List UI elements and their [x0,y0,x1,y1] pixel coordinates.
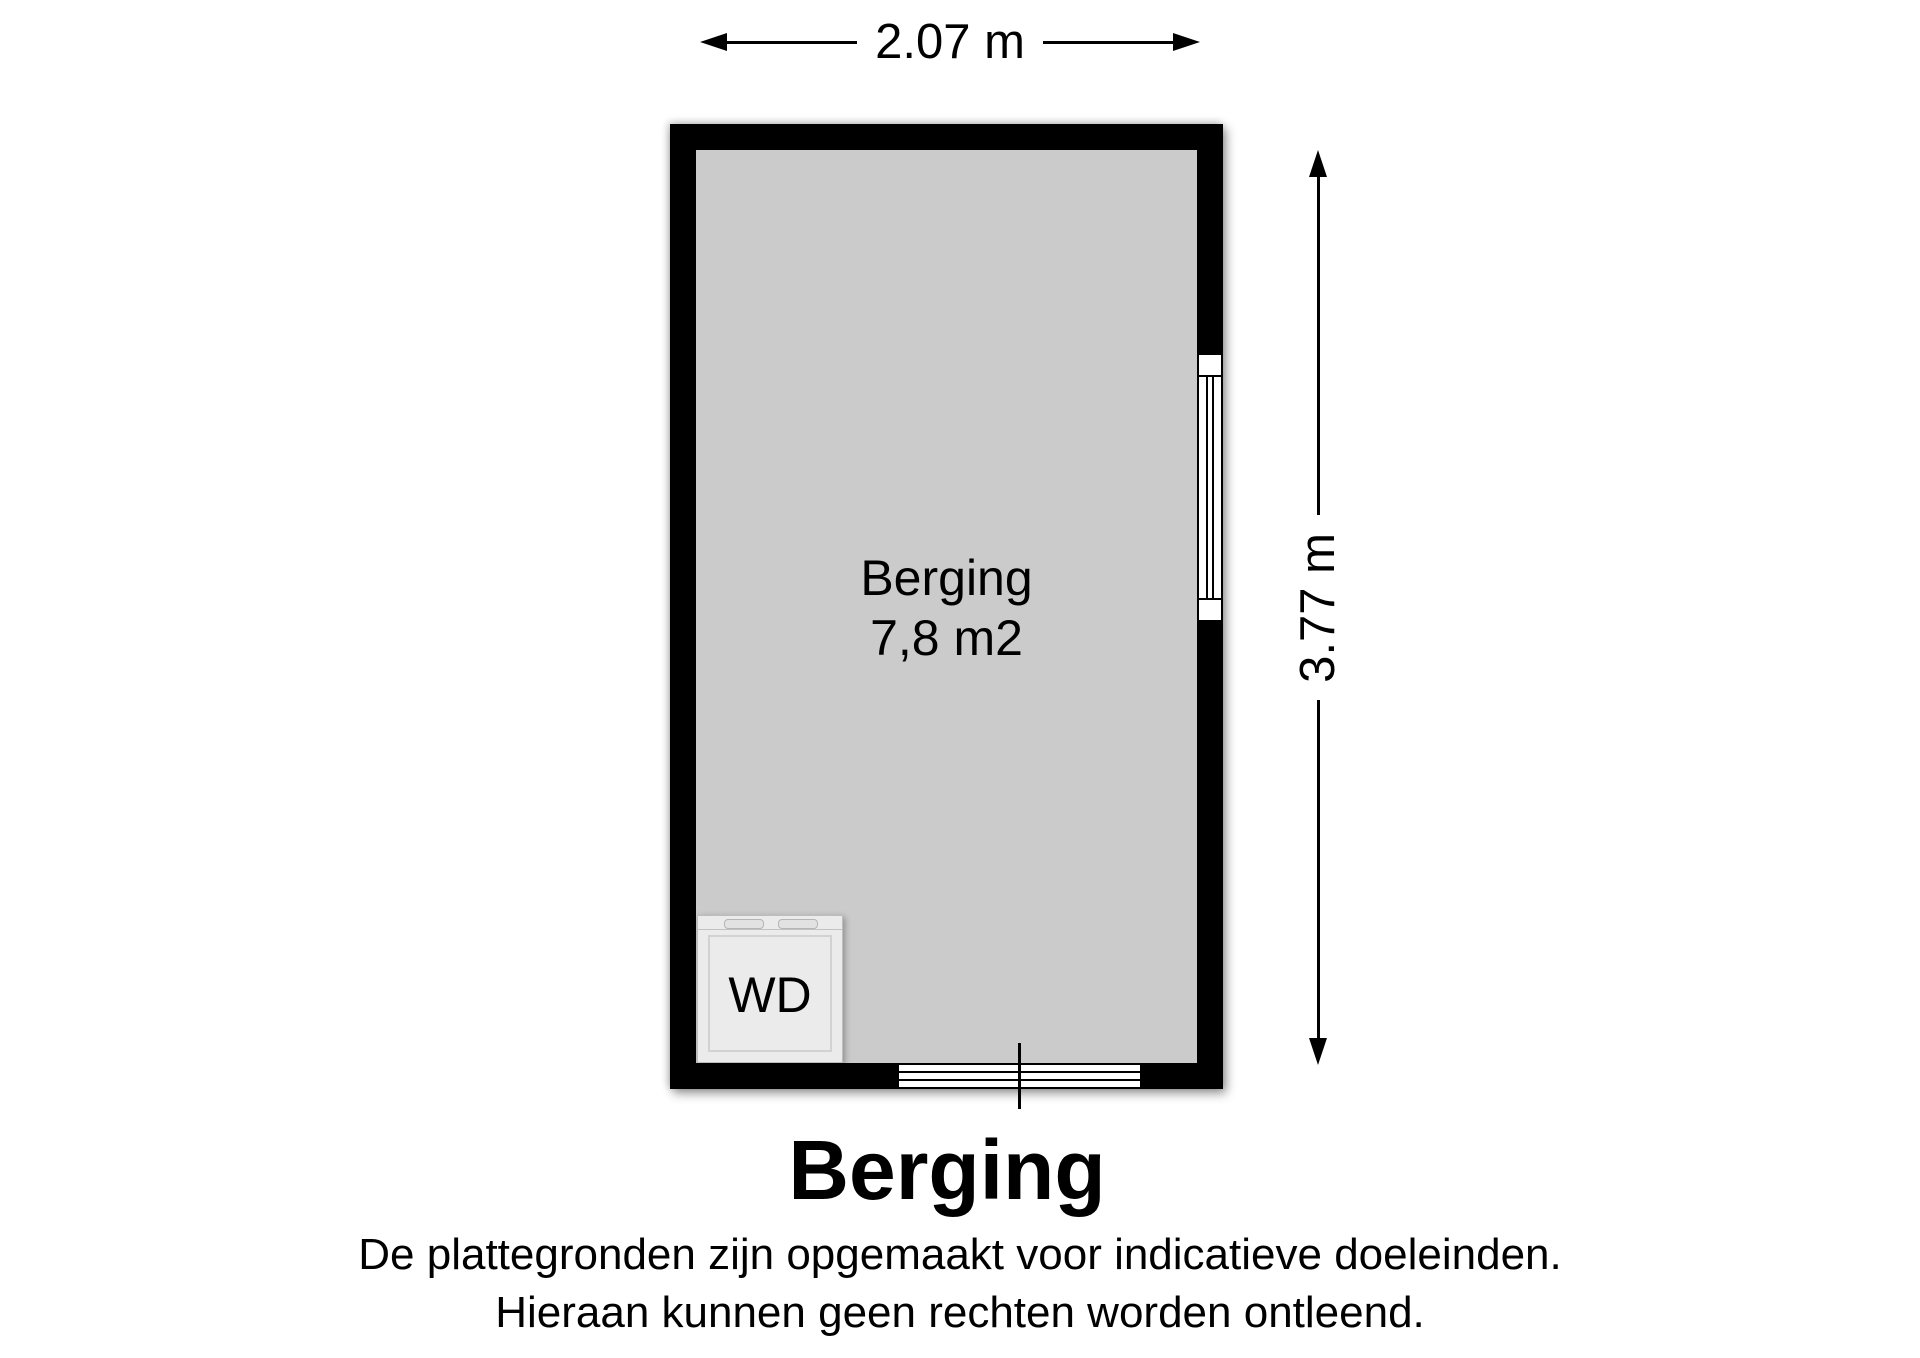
room-label: Berging 7,8 m2 [696,548,1197,668]
door-center-tick [1018,1043,1021,1109]
room-area-label: 7,8 m2 [696,608,1197,668]
floorplan-walls: Berging 7,8 m2 WD [670,124,1223,1089]
arrowhead-right-icon [1173,33,1200,51]
washer-dryer: WD [697,915,843,1063]
window-symbol [1197,353,1223,622]
window-pane-line [1212,377,1214,598]
window-sill-line [1199,598,1221,600]
dimension-line [727,41,857,44]
washer-dryer-control-strip [698,916,842,930]
width-dimension-label: 2.07 m [857,18,1043,67]
room-name-label: Berging [696,548,1197,608]
dimension-line [1043,41,1173,44]
arrowhead-left-icon [700,33,727,51]
washer-dryer-knob-icon [724,919,764,929]
right-dimension: 3.77 m [1296,150,1340,1065]
disclaimer-line-2: Hieraan kunnen geen rechten worden ontle… [0,1284,1920,1342]
top-dimension: 2.07 m [700,14,1200,70]
window-pane-line [1206,377,1208,598]
window-sill-line [1199,375,1221,377]
dimension-line [1317,177,1320,515]
disclaimer: De plattegronden zijn opgemaakt voor ind… [0,1226,1920,1342]
arrowhead-down-icon [1309,1038,1327,1065]
height-dimension-label: 3.77 m [1294,515,1343,701]
plan-title: Berging [0,1122,1894,1218]
disclaimer-line-1: De plattegronden zijn opgemaakt voor ind… [0,1226,1920,1284]
dimension-line [1317,700,1320,1038]
washer-dryer-label: WD [728,970,811,1020]
arrowhead-up-icon [1309,150,1327,177]
washer-dryer-knob-icon [778,919,818,929]
